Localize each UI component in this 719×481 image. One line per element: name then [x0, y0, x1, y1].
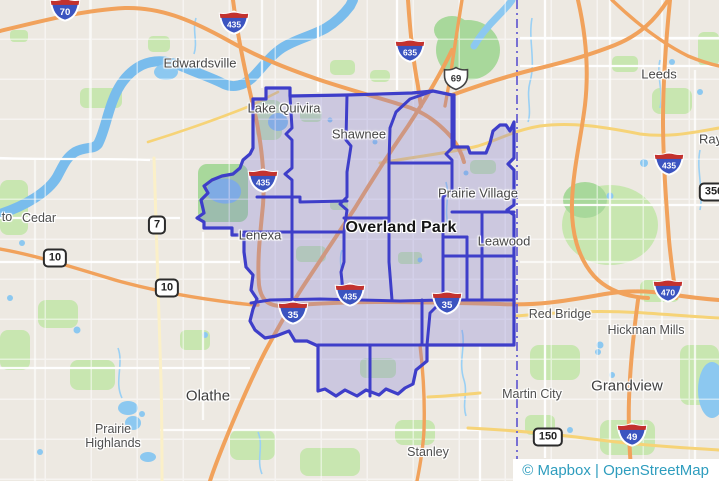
- state-route-badge-10-west: 10: [43, 249, 67, 268]
- area-label-hickman-mills: Hickman Mills: [607, 323, 684, 337]
- interstate-shield-435-northwest: 435: [218, 11, 250, 40]
- state-route-badge-150: 150: [533, 428, 563, 447]
- state-route-badge-10-east: 10: [155, 279, 179, 298]
- city-label-raytown: Raytown: [699, 132, 719, 147]
- area-label-prairie-highlands: Prairie Highlands: [68, 422, 158, 450]
- city-label-leeds: Leeds: [641, 67, 676, 82]
- area-label-stanley: Stanley: [407, 445, 449, 459]
- svg-text:435: 435: [662, 161, 676, 171]
- state-route-badge-7: 7: [148, 216, 166, 235]
- svg-text:35: 35: [288, 310, 299, 321]
- city-label-lenexa: Lenexa: [239, 228, 282, 243]
- map-canvas[interactable]: Edwardsville Lake Quivira Shawnee Prairi…: [0, 0, 719, 481]
- interstate-shield-70: 70: [49, 0, 81, 27]
- state-route-badge-350: 350: [699, 183, 719, 202]
- city-label-grandview: Grandview: [591, 378, 663, 395]
- svg-text:435: 435: [227, 20, 241, 30]
- interstate-shield-435-east: 435: [653, 152, 685, 181]
- interstate-shield-435-west: 435: [247, 169, 279, 198]
- city-label-de-soto-partial: to: [2, 210, 12, 224]
- map-attribution[interactable]: © Mapbox | OpenStreetMap: [513, 459, 719, 481]
- city-label-prairie-village: Prairie Village: [438, 186, 518, 201]
- svg-text:70: 70: [60, 7, 71, 18]
- interstate-shield-49: 49: [616, 423, 648, 452]
- city-label-edwardsville: Edwardsville: [164, 56, 237, 71]
- svg-text:69: 69: [451, 74, 462, 85]
- area-label-red-bridge: Red Bridge: [529, 307, 592, 321]
- city-label-leawood: Leawood: [478, 234, 531, 249]
- us-route-shield-69: 69: [443, 66, 470, 96]
- interstate-shield-470: 470: [652, 279, 684, 308]
- interstate-shield-635: 635: [394, 39, 426, 68]
- interstate-shield-35-southeast: 35: [431, 291, 463, 320]
- basemap-art: [0, 0, 719, 481]
- svg-text:35: 35: [442, 300, 453, 311]
- city-label-olathe: Olathe: [186, 388, 230, 405]
- city-label-overland-park: Overland Park: [345, 219, 456, 237]
- svg-text:470: 470: [661, 288, 675, 298]
- city-label-lake-quivira: Lake Quivira: [248, 101, 321, 116]
- interstate-shield-435-south: 435: [334, 283, 366, 312]
- svg-text:435: 435: [343, 292, 357, 302]
- city-label-shawnee: Shawnee: [332, 127, 386, 142]
- svg-text:49: 49: [627, 432, 638, 443]
- area-label-martin-city: Martin City: [502, 387, 562, 401]
- svg-text:635: 635: [403, 48, 417, 58]
- city-label-cedar: Cedar: [22, 211, 56, 225]
- svg-text:435: 435: [256, 178, 270, 188]
- interstate-shield-35-southwest: 35: [277, 301, 309, 330]
